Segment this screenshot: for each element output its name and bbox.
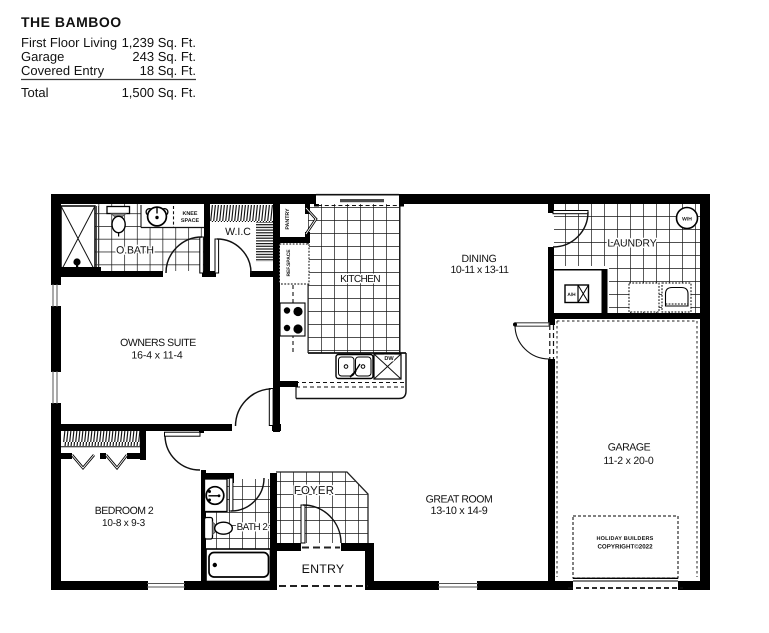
- svg-text:13-10 x 14-9: 13-10 x 14-9: [430, 505, 487, 517]
- svg-text:OWNERS SUITE: OWNERS SUITE: [120, 337, 196, 349]
- svg-text:SPACE: SPACE: [181, 218, 200, 224]
- svg-text:KITCHEN: KITCHEN: [340, 274, 380, 285]
- svg-text:O.BATH: O.BATH: [116, 245, 154, 257]
- svg-text:BEDROOM 2: BEDROOM 2: [95, 505, 154, 517]
- svg-text:ENTRY: ENTRY: [302, 562, 345, 576]
- svg-text:16-4 x 11-4: 16-4 x 11-4: [131, 350, 182, 362]
- svg-text:DW: DW: [384, 356, 394, 362]
- svg-text:11-2 x 20-0: 11-2 x 20-0: [603, 455, 653, 467]
- svg-text:W/H: W/H: [682, 217, 692, 223]
- svg-text:1,239 Sq. Ft.: 1,239 Sq. Ft.: [122, 35, 196, 50]
- svg-text:243 Sq. Ft.: 243 Sq. Ft.: [132, 49, 196, 64]
- svg-text:GARAGE: GARAGE: [608, 442, 651, 454]
- svg-text:PANTRY: PANTRY: [285, 208, 291, 230]
- svg-text:BATH 2: BATH 2: [237, 522, 268, 533]
- svg-text:Garage: Garage: [21, 49, 64, 64]
- svg-text:10-8 x 9-3: 10-8 x 9-3: [102, 518, 146, 529]
- svg-text:First Floor Living: First Floor Living: [21, 35, 117, 50]
- svg-text:W.I.C: W.I.C: [225, 226, 251, 238]
- svg-text:1,500 Sq. Ft.: 1,500 Sq. Ft.: [122, 85, 196, 100]
- svg-text:Covered Entry: Covered Entry: [21, 63, 105, 78]
- svg-text:A/H: A/H: [567, 292, 576, 298]
- svg-text:GREAT ROOM: GREAT ROOM: [426, 494, 493, 506]
- svg-text:LAUNDRY: LAUNDRY: [607, 238, 656, 250]
- svg-text:REF.SPACE: REF.SPACE: [286, 249, 292, 277]
- svg-text:18 Sq. Ft.: 18 Sq. Ft.: [140, 63, 196, 78]
- svg-text:THE BAMBOO: THE BAMBOO: [21, 14, 122, 30]
- svg-text:FOYER: FOYER: [294, 485, 334, 497]
- svg-text:HOLIDAY BUILDERS: HOLIDAY BUILDERS: [597, 536, 654, 542]
- svg-text:COPYRIGHT©2022: COPYRIGHT©2022: [597, 544, 653, 551]
- svg-text:10-11 x 13-11: 10-11 x 13-11: [450, 264, 509, 276]
- svg-text:Total: Total: [21, 85, 49, 100]
- svg-text:KNEE: KNEE: [183, 211, 198, 217]
